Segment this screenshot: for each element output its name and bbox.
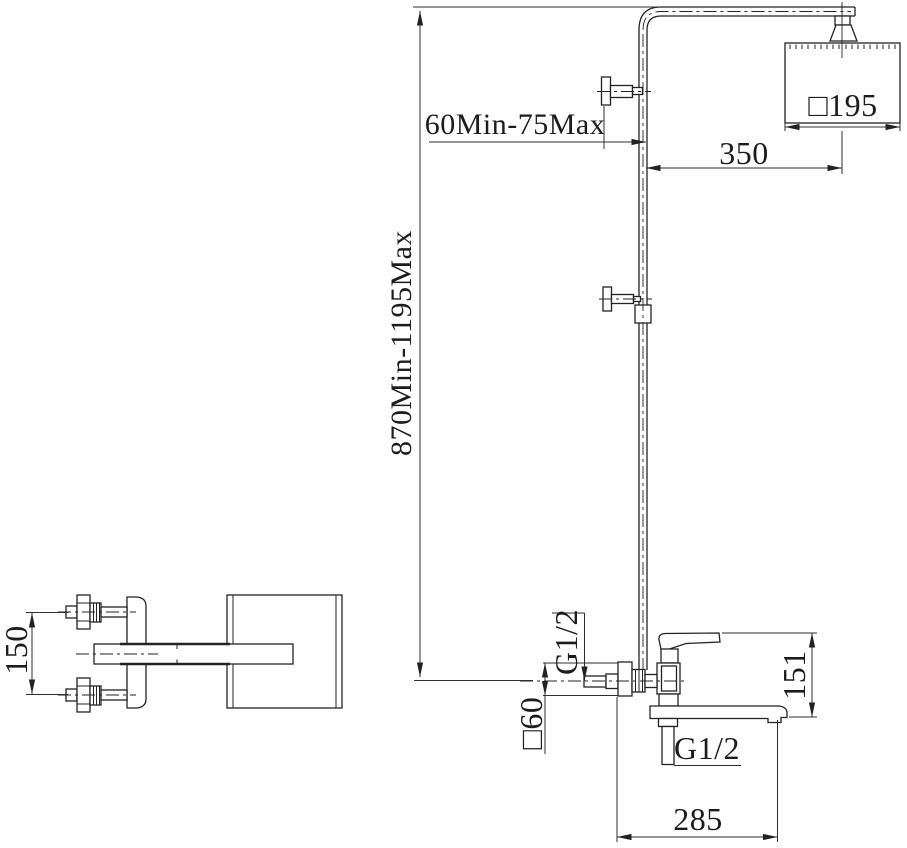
dim-label-inlet-spacing: 150 <box>0 625 32 675</box>
dim-label-bracket-range: 60Min-75Max <box>425 110 606 140</box>
dim-label-height-range: 870Min-1195Max <box>387 230 417 456</box>
slide-bracket <box>599 287 652 323</box>
spout-plan <box>76 644 293 664</box>
inlet-bottom <box>58 678 136 712</box>
dim-label-outlet-thread: G1/2 <box>674 732 740 764</box>
mixer-lever <box>659 633 720 650</box>
dim-label-body-height: 151 <box>778 650 810 700</box>
side-view <box>26 595 342 712</box>
dim-label-inlet-thread: G1/2 <box>550 609 582 675</box>
hose-outlet <box>662 727 674 765</box>
dim-label-spout-reach: 285 <box>673 803 723 835</box>
escutcheon-flange <box>618 662 632 696</box>
dim-label-head-size: □195 <box>808 89 877 121</box>
inlet-top <box>58 595 136 629</box>
pipe-centerline-top <box>643 12 851 31</box>
technical-drawing-canvas: 870Min-1195Max 60Min-75Max 350 □195 G1/2… <box>0 0 907 848</box>
dim-label-escutcheon-size: □60 <box>515 697 547 750</box>
dim-label-arm-projection: 350 <box>719 137 769 169</box>
